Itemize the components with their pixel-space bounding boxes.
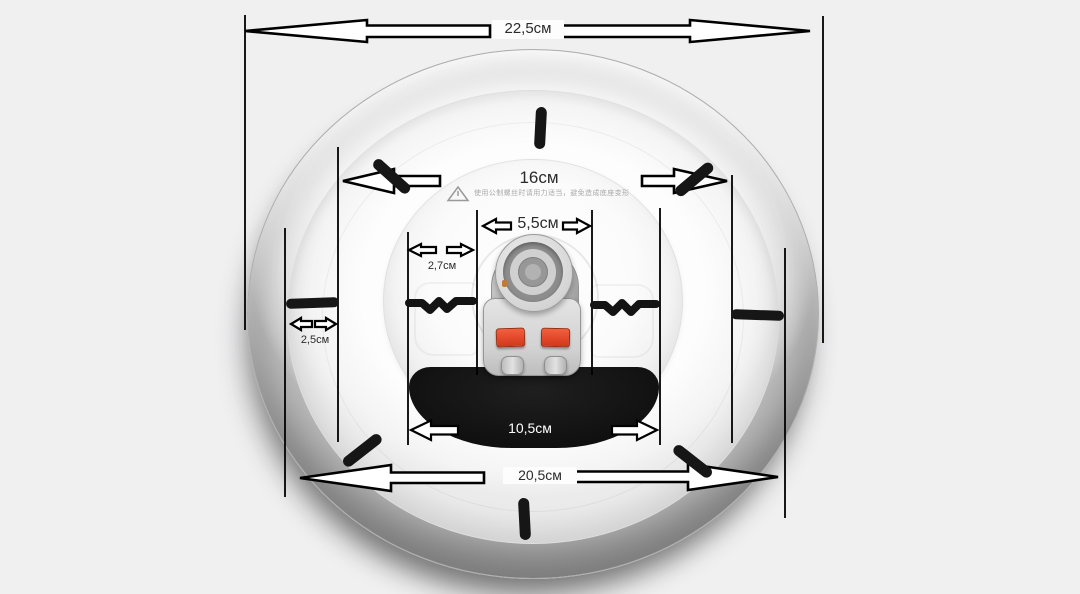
squiggle-left [409, 301, 473, 310]
dimension-overlay [0, 0, 1080, 594]
dim-label-connector-offset: 2,7см [418, 260, 466, 272]
tick-bottom [518, 498, 531, 541]
arrow-overall-left [245, 20, 490, 42]
arrow-connector-left [483, 219, 511, 233]
wire-channel-marks [409, 301, 656, 312]
tick-lower-left [341, 432, 384, 469]
tick-top [534, 107, 547, 150]
small-arrows [291, 219, 657, 440]
dim-label-cutout-width: 10,5см [499, 421, 561, 436]
dim-label-overall-diameter: 22,5см [492, 20, 564, 39]
arrow-rim-right [315, 318, 336, 330]
dim-label-rim-width: 2,5см [291, 334, 339, 346]
arrow-offset-left [409, 244, 436, 256]
squiggle-right [594, 303, 656, 312]
arrow-base-right [575, 464, 778, 490]
arrow-base-left [300, 465, 484, 491]
dim-label-mount-span: 16см [507, 169, 571, 188]
tick-right [731, 309, 784, 321]
arrow-offset-right [447, 244, 473, 256]
warning-triangle-icon [448, 187, 468, 201]
arrow-rim-left [291, 318, 312, 330]
dim-label-connector-width: 5,5см [508, 215, 568, 233]
warning-text: 使用公制螺丝时请用力适当，避免造成底座变形 [474, 188, 644, 198]
tick-left [286, 297, 339, 309]
lamp-dimension-diagram: 22,5см 16см 5,5см 2,7см 2,5см 10,5см 20,… [0, 0, 1080, 594]
arrow-overall-right [562, 20, 810, 42]
dim-label-base-diameter: 20,5см [503, 467, 577, 484]
extension-lines [245, 15, 823, 518]
arrow-cutout-left [411, 421, 458, 441]
arrow-cutout-right [612, 421, 657, 441]
